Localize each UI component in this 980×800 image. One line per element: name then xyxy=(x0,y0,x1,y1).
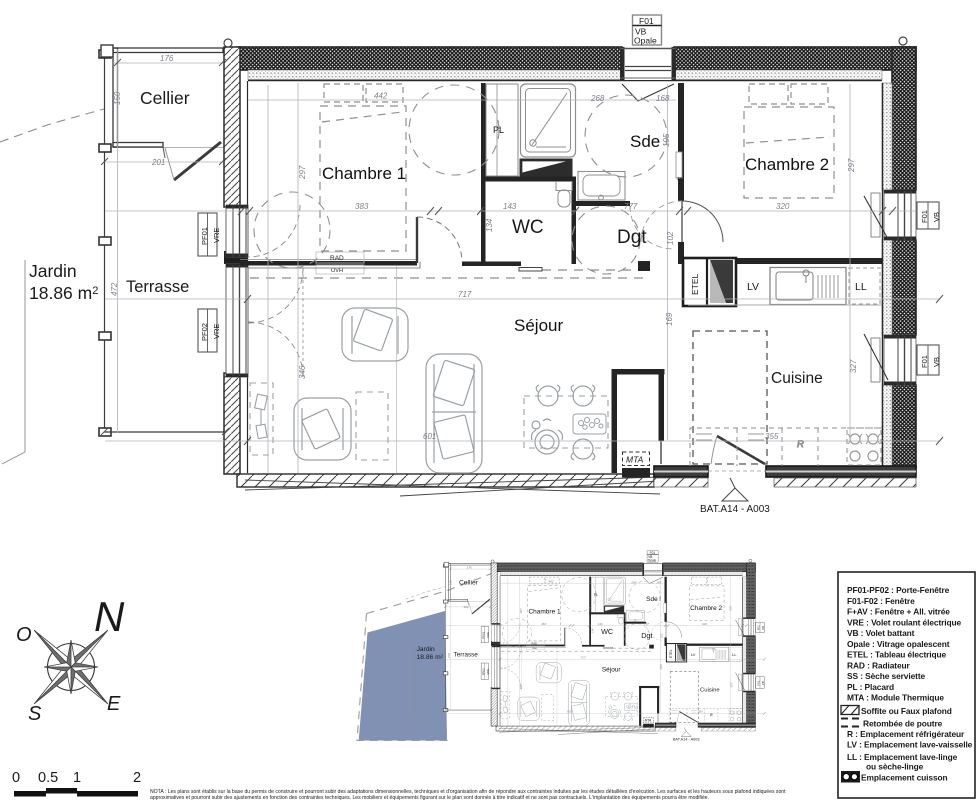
svg-text:102: 102 xyxy=(666,231,675,245)
svg-text:BAT.A14 - A003: BAT.A14 - A003 xyxy=(700,504,770,515)
svg-text:MTA: MTA xyxy=(626,455,644,465)
svg-text:320: 320 xyxy=(776,202,790,211)
svg-text:143: 143 xyxy=(503,202,517,211)
svg-text:E: E xyxy=(107,693,121,715)
svg-text:LV : Emplacement lave-vaissell: LV : Emplacement lave-vaisselle xyxy=(847,740,973,750)
svg-text:442: 442 xyxy=(374,92,388,101)
svg-text:ETEL: ETEL xyxy=(690,273,700,295)
svg-text:VRE: VRE xyxy=(212,324,221,339)
svg-text:777: 777 xyxy=(624,202,638,211)
svg-text:ss: ss xyxy=(677,176,683,182)
svg-text:VRE: VRE xyxy=(212,228,221,243)
svg-text:1: 1 xyxy=(73,770,81,786)
svg-text:O: O xyxy=(16,624,32,646)
svg-text:472: 472 xyxy=(110,282,119,296)
svg-text:Jardin: Jardin xyxy=(29,261,77,281)
svg-text:176: 176 xyxy=(160,54,174,63)
svg-text:0.5: 0.5 xyxy=(38,770,58,786)
svg-text:PL : Placard: PL : Placard xyxy=(847,682,894,692)
svg-text:F01: F01 xyxy=(639,16,654,26)
svg-text:LV: LV xyxy=(747,281,759,293)
svg-text:PF01: PF01 xyxy=(200,227,209,245)
svg-text:268: 268 xyxy=(590,94,605,103)
svg-text:ETEL : Tableau électrique: ETEL : Tableau électrique xyxy=(847,650,947,660)
svg-text:169: 169 xyxy=(665,312,674,326)
svg-text:346: 346 xyxy=(298,365,307,379)
svg-text:F+AV : Fenêtre + All. vitrée: F+AV : Fenêtre + All. vitrée xyxy=(847,607,950,617)
svg-text:ou sèche-linge: ou sèche-linge xyxy=(866,762,924,772)
svg-text:Emplacement cuisson: Emplacement cuisson xyxy=(861,773,948,783)
svg-text:Dgt: Dgt xyxy=(617,227,647,248)
svg-text:MTA : Module Thermique: MTA : Module Thermique xyxy=(847,693,944,703)
svg-text:Terrasse: Terrasse xyxy=(126,278,189,296)
svg-text:PF02: PF02 xyxy=(200,323,209,341)
svg-text:18.86 m2: 18.86 m2 xyxy=(29,283,98,303)
svg-text:Chambre 2: Chambre 2 xyxy=(745,155,829,174)
svg-text:S: S xyxy=(28,703,42,725)
svg-text:RAD: RAD xyxy=(330,255,344,262)
svg-text:717: 717 xyxy=(458,290,472,299)
svg-text:F01: F01 xyxy=(920,355,929,368)
svg-text:VB: VB xyxy=(932,212,941,222)
svg-text:R : Emplacement réfrigérateur: R : Emplacement réfrigérateur xyxy=(847,729,965,739)
svg-text:LL : Emplacement lave-linge: LL : Emplacement lave-linge xyxy=(847,752,958,762)
svg-text:297: 297 xyxy=(847,158,856,173)
svg-text:Sde: Sde xyxy=(630,132,660,151)
svg-text:355: 355 xyxy=(765,432,779,441)
svg-text:Opale : Vitrage opalescent: Opale : Vitrage opalescent xyxy=(847,639,950,649)
svg-text:SS : Sèche serviette: SS : Sèche serviette xyxy=(847,671,926,681)
svg-text:Chambre 1: Chambre 1 xyxy=(322,164,406,183)
svg-text:297: 297 xyxy=(298,165,307,180)
svg-text:201: 201 xyxy=(151,158,165,167)
svg-text:601: 601 xyxy=(423,432,436,441)
svg-text:RAD : Radiateur: RAD : Radiateur xyxy=(847,660,911,670)
svg-text:PF01-PF02 : Porte-Fenêtre: PF01-PF02 : Porte-Fenêtre xyxy=(847,585,950,595)
svg-text:0: 0 xyxy=(12,770,20,786)
svg-text:Cellier: Cellier xyxy=(140,88,190,108)
svg-text:168: 168 xyxy=(656,94,670,103)
svg-text:150: 150 xyxy=(113,91,122,105)
svg-text:134: 134 xyxy=(485,218,494,232)
svg-text:WC: WC xyxy=(512,217,544,238)
svg-text:Opale: Opale xyxy=(634,36,657,46)
svg-text:approximatives et pourront sub: approximatives et pourront subir des aju… xyxy=(150,795,709,800)
svg-text:327: 327 xyxy=(849,359,858,373)
svg-text:2: 2 xyxy=(133,770,141,786)
svg-text:VB: VB xyxy=(932,357,941,367)
svg-text:Retombée de poutre: Retombée de poutre xyxy=(863,719,943,729)
svg-text:VB : Volet battant: VB : Volet battant xyxy=(847,628,915,638)
svg-text:OVH: OVH xyxy=(331,268,343,274)
svg-text:N: N xyxy=(94,593,125,640)
svg-text:Soffite ou Faux plafond: Soffite ou Faux plafond xyxy=(861,706,952,716)
svg-text:383: 383 xyxy=(355,202,369,211)
svg-text:LL: LL xyxy=(855,281,867,293)
svg-text:Séjour: Séjour xyxy=(514,316,563,335)
svg-text:F01: F01 xyxy=(920,210,929,223)
svg-text:Cuisine: Cuisine xyxy=(771,370,823,387)
svg-text:F01-F02 : Fenêtre: F01-F02 : Fenêtre xyxy=(847,596,915,606)
svg-text:195: 195 xyxy=(662,133,671,147)
svg-text:VRE : Volet roulant électrique: VRE : Volet roulant électrique xyxy=(847,617,962,627)
